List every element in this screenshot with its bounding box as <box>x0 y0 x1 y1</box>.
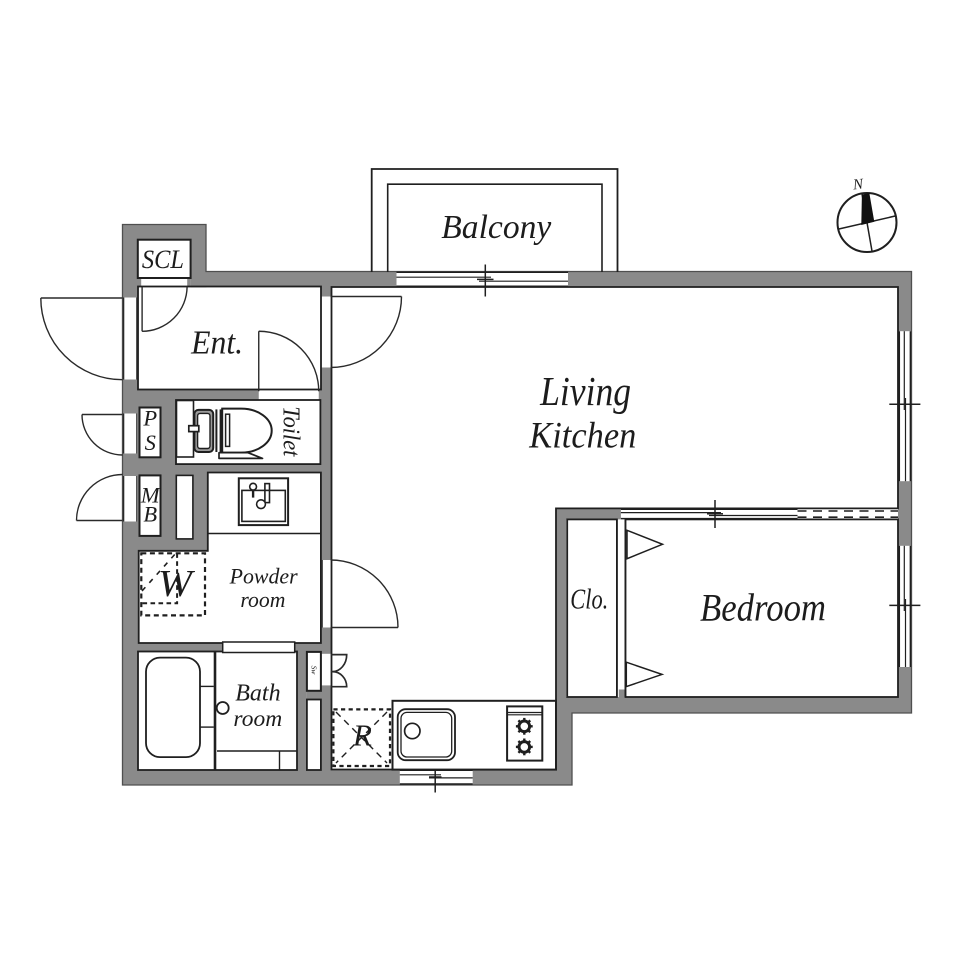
svg-text:Clo.: Clo. <box>570 584 608 615</box>
svg-text:W: W <box>158 563 195 605</box>
svg-text:room: room <box>233 706 282 732</box>
svg-text:Bedroom: Bedroom <box>700 587 826 630</box>
svg-text:SCL: SCL <box>142 245 184 274</box>
svg-text:P: P <box>142 406 157 431</box>
svg-text:Kitchen: Kitchen <box>528 415 636 456</box>
svg-text:Balcony: Balcony <box>441 209 552 246</box>
svg-text:Sw: Sw <box>310 666 319 675</box>
svg-text:Powder: Powder <box>229 563 298 588</box>
svg-text:B: B <box>143 502 157 527</box>
svg-text:S: S <box>145 430 156 455</box>
svg-text:Bath: Bath <box>235 681 280 707</box>
svg-text:room: room <box>240 587 285 612</box>
svg-text:R: R <box>352 718 372 753</box>
svg-text:Toilet: Toilet <box>278 406 305 457</box>
svg-text:Living: Living <box>539 368 631 414</box>
svg-text:Ent.: Ent. <box>190 324 243 361</box>
